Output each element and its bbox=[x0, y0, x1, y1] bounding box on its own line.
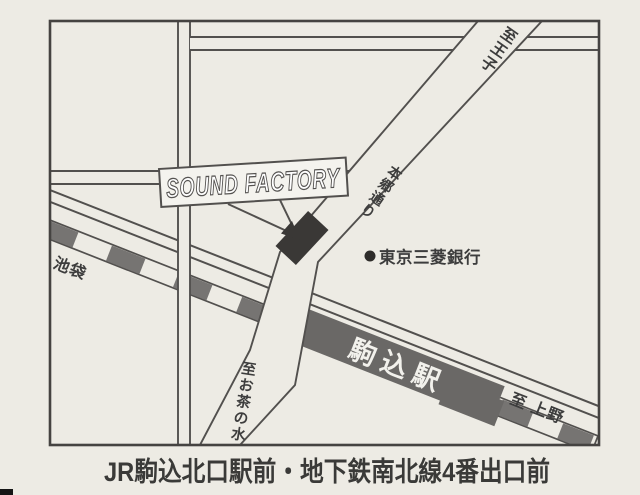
bank-poi: 東京三菱銀行 bbox=[365, 247, 482, 267]
bank-label: 東京三菱銀行 bbox=[379, 247, 481, 267]
road-top-horizontal bbox=[190, 37, 599, 50]
bank-marker-icon bbox=[365, 251, 376, 262]
road-vertical bbox=[178, 21, 190, 445]
access-map: 駒込駅 至 池袋 至 上野 bbox=[0, 0, 640, 495]
map-caption: JR駒込北口駅前・地下鉄南北線4番出口前 bbox=[104, 456, 550, 487]
scan-artifact bbox=[0, 489, 13, 495]
